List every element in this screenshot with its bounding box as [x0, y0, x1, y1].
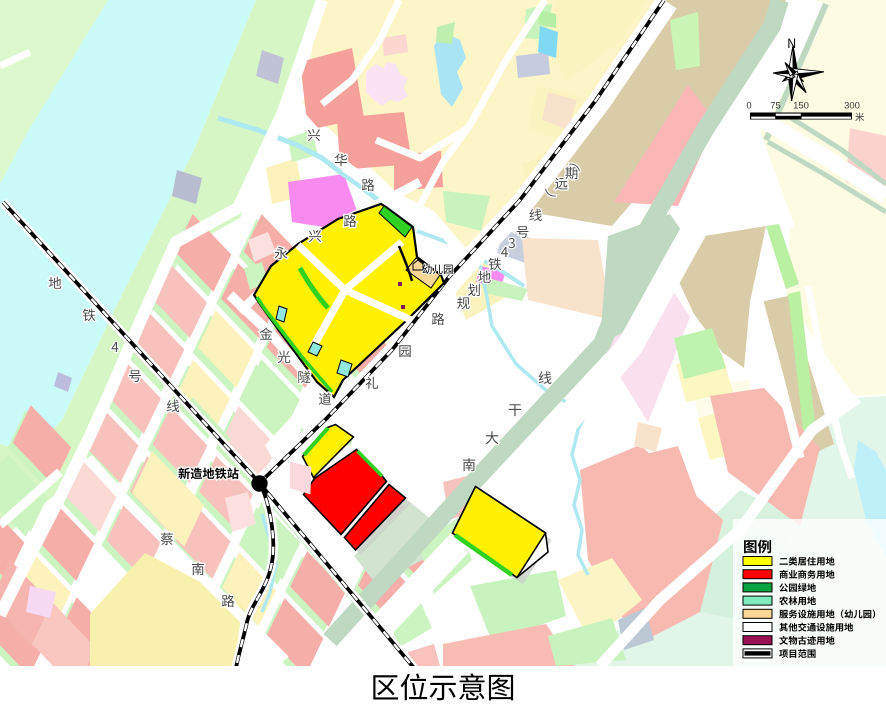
- svg-text:150: 150: [793, 101, 809, 112]
- svg-text:0: 0: [746, 101, 751, 112]
- svg-text:300: 300: [844, 101, 860, 112]
- svg-text:75: 75: [770, 101, 781, 112]
